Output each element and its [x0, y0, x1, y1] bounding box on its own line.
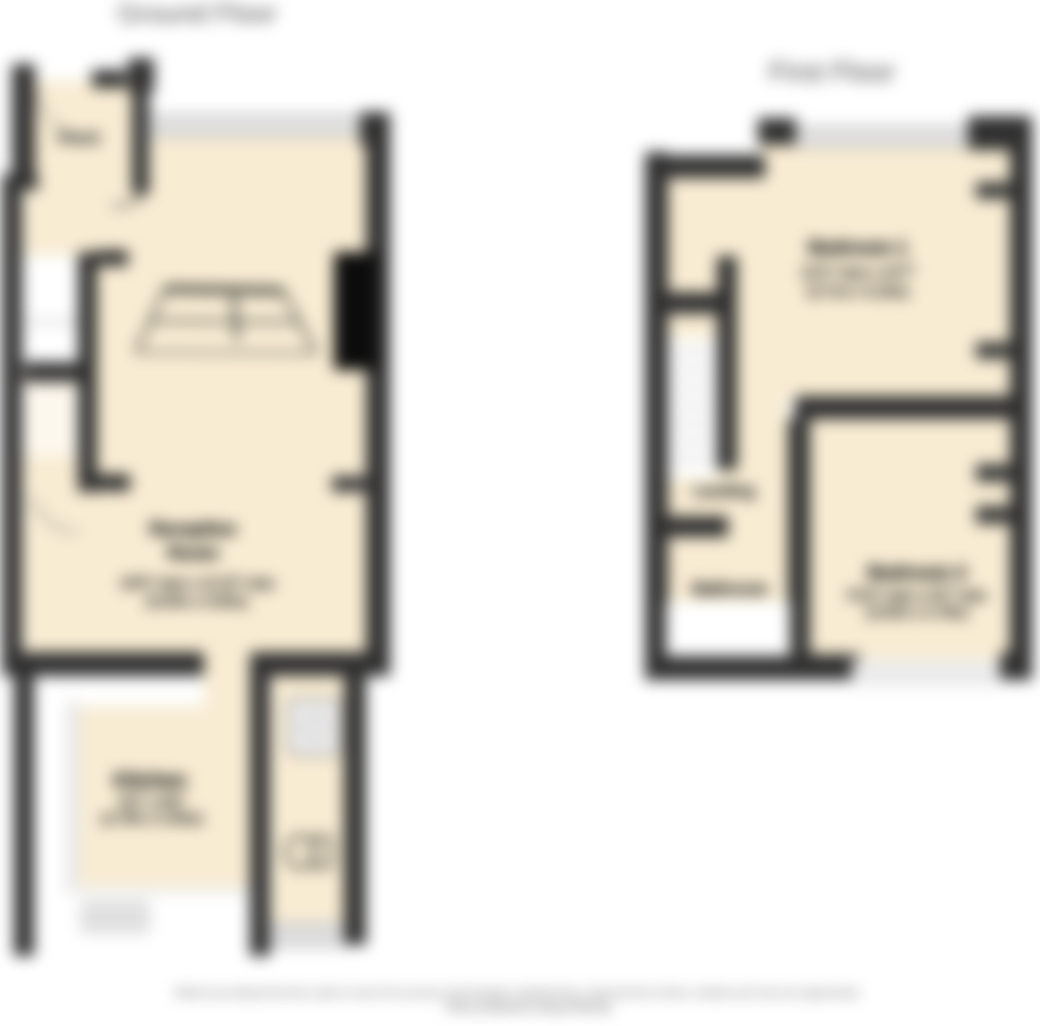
svg-text:Landing: Landing	[693, 483, 755, 500]
svg-text:Bathroom: Bathroom	[692, 581, 768, 598]
svg-text:Kitchen: Kitchen	[113, 770, 186, 792]
svg-text:9'2" x 8'6": 9'2" x 8'6"	[119, 794, 185, 811]
svg-text:Whilst every attempt has been: Whilst every attempt has been made to en…	[175, 988, 861, 999]
svg-text:Bedroom 1: Bedroom 1	[808, 238, 908, 259]
svg-text:9'10" max x 9'2" max: 9'10" max x 9'2" max	[848, 587, 987, 604]
svg-text:Reception: Reception	[149, 519, 236, 539]
svg-text:Porch: Porch	[58, 130, 101, 147]
svg-text:First Floor: First Floor	[769, 56, 895, 87]
svg-text:16'5" max x 11'10" max: 16'5" max x 11'10" max	[120, 575, 275, 592]
svg-text:(2.79m x 2.59m): (2.79m x 2.59m)	[101, 810, 203, 826]
svg-text:Bedroom 2: Bedroom 2	[867, 563, 966, 584]
svg-text:Plan produced using PlanUp.: Plan produced using PlanUp.	[446, 999, 614, 1014]
svg-text:(5.00m x 3.60m): (5.00m x 3.60m)	[146, 593, 248, 609]
svg-text:(3.71m x 3.23m): (3.71m x 3.23m)	[807, 283, 909, 299]
svg-text:Ground Floor: Ground Floor	[117, 0, 276, 28]
svg-text:Room: Room	[168, 543, 219, 563]
svg-text:(3.00m x 2.79m): (3.00m x 2.79m)	[866, 604, 968, 620]
svg-text:12'2" max x 10'7": 12'2" max x 10'7"	[801, 264, 916, 281]
